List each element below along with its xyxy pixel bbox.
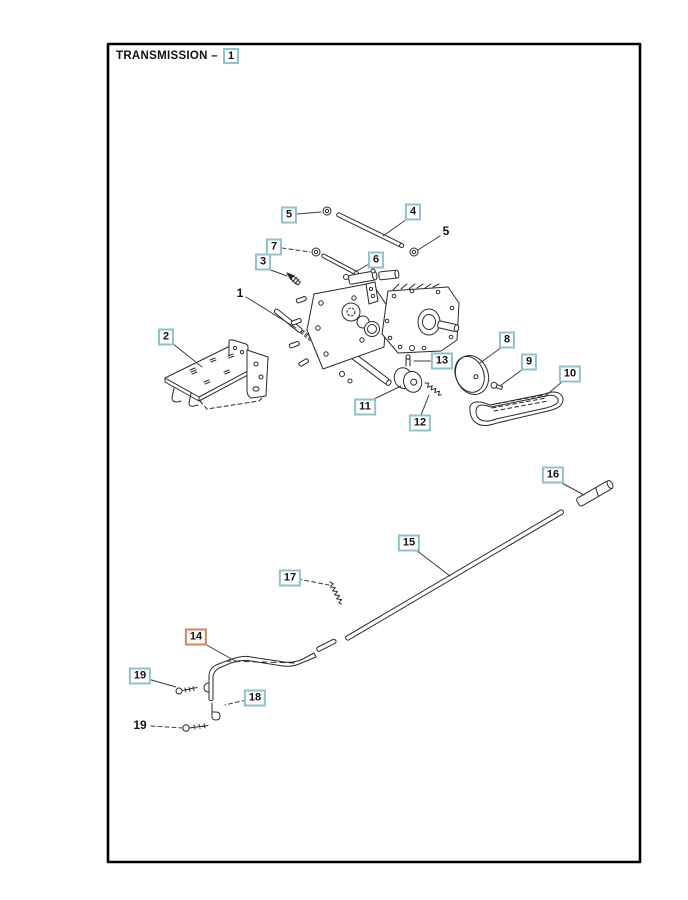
callout-11[interactable]: 11 [354, 399, 376, 416]
callout-18[interactable]: 18 [244, 690, 266, 707]
callout-13[interactable]: 13 [431, 353, 453, 370]
title-ref-callout[interactable]: 1 [223, 48, 239, 64]
callout-3[interactable]: 3 [255, 254, 271, 271]
callout-14[interactable]: 14 [185, 629, 207, 646]
page-title: TRANSMISSION – 1 [116, 48, 239, 64]
page-frame [108, 44, 640, 862]
page: TRANSMISSION – 1 54573612813910111216151… [0, 0, 688, 900]
callout-1-plain: 1 [237, 286, 244, 300]
callout-2[interactable]: 2 [158, 329, 174, 346]
exploded-parts-diagram [0, 0, 688, 900]
callout-17[interactable]: 17 [279, 570, 301, 587]
callout-5-plain: 5 [443, 224, 450, 238]
callout-10[interactable]: 10 [559, 366, 581, 383]
callout-6[interactable]: 6 [368, 252, 384, 269]
callout-16[interactable]: 16 [542, 467, 564, 484]
callout-19-plain: 19 [133, 718, 146, 732]
callout-19[interactable]: 19 [129, 668, 151, 685]
callout-4[interactable]: 4 [405, 204, 421, 221]
callout-15[interactable]: 15 [398, 535, 420, 552]
callout-8[interactable]: 8 [499, 332, 515, 349]
page-title-text: TRANSMISSION – [116, 50, 218, 62]
callout-5[interactable]: 5 [281, 207, 297, 224]
callout-12[interactable]: 12 [409, 415, 431, 432]
callout-9[interactable]: 9 [521, 354, 537, 371]
